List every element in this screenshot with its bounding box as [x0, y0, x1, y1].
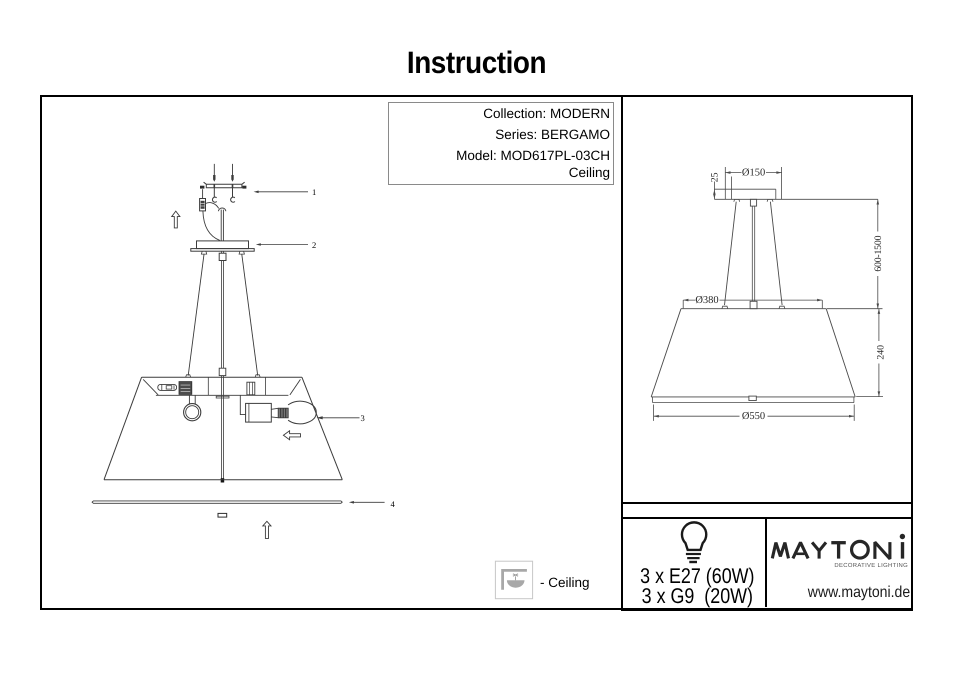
svg-text:600-1500: 600-1500 — [873, 235, 884, 271]
svg-text:Ø550: Ø550 — [742, 411, 765, 422]
svg-text:240: 240 — [875, 345, 886, 360]
svg-text:Ø380: Ø380 — [695, 295, 718, 306]
svg-text:25: 25 — [710, 172, 721, 182]
svg-text:Ø150: Ø150 — [742, 168, 765, 179]
